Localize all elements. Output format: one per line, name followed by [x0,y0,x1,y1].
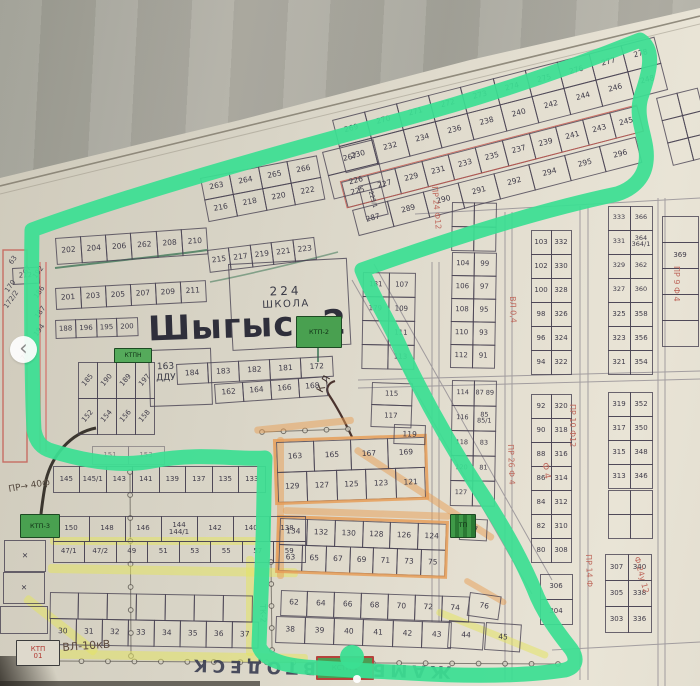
plot-cell: 330 [551,254,572,279]
plot-cell: 182 [238,359,271,382]
plot-cell: 181 [269,357,302,380]
plot-cell: 162 [213,382,243,404]
plot-cell [608,490,631,515]
plot-cell: 71 [372,547,398,575]
plot-cell: 126 [389,521,419,549]
plot-cell: 166 [269,378,299,400]
handwritten-note: Ф 4 [539,462,551,480]
plot-cell: 209 [154,281,181,304]
plot-cell: 47/1 [53,541,86,563]
handwritten-note: ТК-2 [258,604,267,623]
plot-cell: 57 [242,541,275,563]
plot-cell: 303 [605,606,629,633]
plot-cell: 115 [371,381,413,405]
plot-cell: 51 [147,541,180,563]
plot-cell: 96 [531,326,552,351]
plot-cell [473,226,496,251]
plot-map-photo: Шыгыс- 2 224 ШКОЛА 163 ДДУ ЖАМБЫ АВТОДЕС… [0,0,700,686]
plot-cell: 145/1 [79,466,107,493]
plot-cell: 189 [116,362,136,399]
handwritten-note: ПР 14 Ф [584,554,593,587]
plot-cell: 317 [608,416,631,441]
plot-cell: 85 85/1 [473,405,496,431]
plot-cell: 208 [156,229,184,258]
plot-block-col-114: 11487 8911685 85/11188312081127 [450,380,496,506]
plot-cell: 98 [531,302,552,327]
plot-block-col-blank-r [608,490,652,538]
plot-cell: 82 [531,514,552,539]
plot-cell: 110 [450,320,473,344]
kindergarten-number: 163 [156,362,176,373]
plot-block-col-104: 1049910697108951109311291 [450,252,496,368]
plot-cell: 112 [449,343,472,367]
plot-cell: 305 [605,580,629,607]
plot-cell: 42 [392,620,423,648]
plot-cell: 153 [128,446,165,465]
plot-cell: 329 [608,254,631,279]
plot-cell: 130 [334,519,364,547]
plot-cell: 140 [233,516,270,542]
plot-cell: 111 [387,320,414,345]
plot-cell: 324 [551,326,572,351]
plot-cell: 346 [630,464,653,489]
plot-cell: 327 [608,278,631,303]
plot-cell: 124 [417,522,447,550]
plot-cell [608,514,631,539]
plot-cell: 204 [80,234,108,263]
plot-cell: 141 [132,466,160,493]
plot-cell: 203 [79,285,106,308]
plot-cell: 156 [116,398,136,435]
plot-cell: 197 [135,362,155,399]
plot-cell: 62 [280,589,309,616]
plot-cell: 97 [473,275,496,299]
plot-cell: 151 [92,446,129,465]
handwritten-note: ВЛ-10кВ [62,639,111,653]
plot-cell: 356 [630,326,653,351]
plot-cell: 165 [312,439,351,471]
plot-cell: 121 [395,466,427,498]
plot-cell: 158 [135,398,155,435]
plot-cell: 40 [333,618,364,646]
plot-cell: 66 [333,591,362,618]
plot-cell: 172 [300,355,333,378]
substation-box: КТПН [114,348,152,363]
plot-cell: 103 [531,230,552,255]
plot-cell: 364 364/1 [630,230,653,255]
plot-cell: ✕ [3,572,45,604]
plot-cell: 183 [207,360,240,383]
plot-cell: 366 [630,206,653,231]
plot-cell [451,225,474,250]
handwritten-note: ПР 10 Ф12 [568,404,576,447]
plot-cell [361,343,388,368]
plot-cell: 87 89 [473,380,496,406]
plot-cell: 81 [472,455,495,481]
plot-block-garages [451,202,496,251]
plot-cell: 36 [205,620,232,647]
plot-cell: 310 [551,514,572,539]
plot-cell: 352 [630,392,653,417]
plot-cell [630,514,653,539]
plot-cell: 132 [306,518,336,546]
plot-cell: 211 [179,280,206,303]
plot-cell: 333 [608,206,631,231]
plot-cell: 119 [393,424,426,445]
plot-cell: 200 [116,317,138,337]
substation-box: КТП-2 [296,316,342,348]
plot-block-rot-185: 185190189197152154156158 [78,362,154,434]
plot-cell: 314 [551,466,572,491]
plot-cell: 95 [472,298,495,322]
plot-cell: 114 [451,379,474,405]
plot-cell: 179 [362,295,389,320]
plot-cell: 319 [608,392,631,417]
plot-cell: 362 [630,254,653,279]
plot-cell: 108 [450,297,473,321]
plot-cell [630,490,653,515]
plot-cell [193,594,223,622]
plot-cell: 59 [273,541,306,563]
plot-cell: 33 [127,619,154,646]
carousel-prev-button[interactable]: ‹ [10,336,37,363]
plot-cell: 207 [129,282,156,305]
plot-cell: 142 [197,516,234,542]
plot-cell: 348 [630,440,653,465]
plot-cell [471,480,494,506]
plot-cell: 137 [185,466,213,493]
plot-cell [222,595,252,623]
plot-cell: 358 [630,302,653,327]
plot-cell: 44 [447,620,485,650]
plot-block-row-38: 383940414243 [275,616,452,648]
plot-cell: 109 [388,296,415,321]
plot-cell: 188 [54,319,76,339]
plot-block-row-188: 188196195200 [55,317,138,338]
plot-cell: 102 [531,254,552,279]
plot-cell: 196 [75,318,97,338]
plot-cell: 99 [473,252,496,276]
plot-cell: 91 [471,344,494,368]
plot-cell: 144 144/1 [161,516,198,542]
plot-cell: 262 [130,230,158,259]
plot-cell: 326 [551,302,572,327]
plot-cell [78,592,108,620]
plot-cell: 322 [551,350,572,375]
plot-cell: 143 [106,466,134,493]
chevron-left-icon: ‹ [19,338,27,359]
plot-cell: 321 [608,350,631,375]
plot-block-col-333: 333366331364 364/1329362327360 [608,206,652,302]
plot-block-row-150: 150148146144 144/1142140138 [53,516,305,541]
plot-cell: 133 [238,466,266,493]
plot-cell [107,592,137,620]
plot-cell: 35 [179,620,206,647]
plot-block-col-103: 103332102330100328983269632494322 [531,230,571,374]
plot-cell: 127 [449,479,472,505]
plot-cell: 84 [531,490,552,515]
plot-cell: 41 [363,619,394,647]
plot-cell: 336 [628,606,652,633]
plot-cell: 369 [662,242,699,269]
plot-block-orange-163: 163165167169129127125123121 [276,437,426,502]
plot-cell: 45 [484,622,522,652]
plot-cell: 145 [53,466,81,493]
plot-cell: 107 [388,272,415,297]
handwritten-note: ВЛ 0,4 [508,296,517,323]
plot-cell: 350 [630,416,653,441]
kindergarten-text: ДДУ [156,372,176,383]
plot-cell: 307 [605,554,629,581]
plot-cell: 313 [608,464,631,489]
plot-cell: 331 [608,230,631,255]
handwritten-note: ПР 26 Ф 4 [506,444,515,485]
plot-cell: 210 [181,227,209,256]
plot-cell: 106 [451,274,474,298]
plot-cell: 135 [212,466,240,493]
plot-cell: 38 [275,615,306,643]
plot-cell: 49 [116,541,149,563]
plot-cell: 304 [540,599,573,625]
plot-cell: 55 [210,541,243,563]
plot-cell: 128 [362,520,392,548]
plot-cell: 328 [551,278,572,303]
plot-cell: 184 [175,362,208,385]
plot-cell: 113 [387,344,414,369]
plot-cell: 92 [531,394,552,419]
plot-block-col-325: 325358323356321354 [608,302,652,374]
handwritten-note: ПР 9 Ф 4 [672,266,680,302]
plot-cell: 152 [78,398,98,435]
school-text: ШКОЛА [262,298,310,312]
plot-cell: 120 [450,454,473,480]
plot-cell: 195 [95,317,117,337]
plot-cell: 332 [551,230,572,255]
plot-cell: 116 [451,404,474,430]
plot-cell: 181 [362,271,389,296]
plot-cell: 323 [608,326,631,351]
plot-cell [662,216,699,243]
plot-cell: 146 [125,516,162,542]
plot-cell: 360 [630,278,653,303]
plot-cell: 72 [414,594,443,621]
plot-cell: 94 [531,350,552,375]
plot-cell: 164 [241,380,271,402]
plot-cell [473,202,496,227]
plot-cell: 68 [360,592,389,619]
plot-block-col-181: 181107179109111113 [361,272,415,369]
plot-cell: 75 [420,548,446,576]
plot-cell [136,593,166,621]
photo-edge-shadow [0,681,260,686]
plot-cell: 123 [365,467,397,499]
plot-cell [164,594,194,622]
plot-cell: 312 [551,490,572,515]
plot-block-col-115: 115117 [370,382,412,427]
plot-cell: 83 [472,430,495,456]
plot-cell: 205 [104,284,131,307]
plot-cell: 190 [97,362,117,399]
plot-cell: 80 [531,538,552,563]
plot-cell: 163 [275,440,314,472]
plot-block-row-145: 145145/1143141139137135133 [53,466,265,492]
plot-cell: 90 [531,418,552,443]
school-number: 224 [262,283,310,300]
plot-cell: 201 [54,286,81,309]
plot-cell: 138 [269,516,306,542]
plot-cell: 34 [153,619,180,646]
plot-cell [451,201,474,226]
plot-cell: 104 [451,251,474,275]
plot-cell: 70 [387,593,416,620]
plot-cell: 148 [89,516,126,542]
plot-cell: 129 [277,470,309,502]
plot-cell: 125 [336,468,368,500]
plot-cell [662,320,699,347]
plot-cell: 308 [551,538,572,563]
plot-block-col-319: 319352317350315348313346 [608,392,652,488]
plot-cell: 354 [630,350,653,375]
kindergarten-label: 163 ДДУ [156,362,176,384]
school-label: 224 ШКОЛА [262,283,310,312]
plot-cell: 185 [78,362,98,399]
plot-cell [49,591,79,619]
plot-cell: 100 [531,278,552,303]
plot-cell: 76 [467,592,502,620]
plot-cell: 206 [105,232,133,261]
plot-cell: 67 [325,545,351,573]
plot-cell: 325 [608,302,631,327]
plot-cell: 306 [540,574,573,600]
substation-box: ТП [450,514,476,538]
substation-box: КСТП-1 [316,656,374,680]
plot-cell: 37 [231,621,258,648]
substation-box: КТП-3 [20,514,60,538]
plot-cell [0,606,48,634]
plot-cell: 139 [159,466,187,493]
plot-cell: 118 [450,429,473,455]
plot-cell: 315 [608,440,631,465]
plot-block-col-92: 92320903188831686314843128231080308 [531,394,571,562]
plot-cell [361,319,388,344]
plot-cell: 154 [97,398,117,435]
plot-cell: ✕ [4,540,46,572]
plot-cell: 93 [472,321,495,345]
plot-cell: 39 [304,617,335,645]
plot-block-row-153: 151153 [92,446,164,464]
plot-cell: 127 [306,469,338,501]
substation-box: КТП 01 [16,640,60,666]
plot-block-row-47: 47/147/2495153555759 [53,541,305,562]
plot-cell: 74 [441,595,470,622]
plot-cell: 64 [306,590,335,617]
plot-cell: 73 [396,548,422,576]
plot-cell: 69 [349,546,375,574]
plot-cell: 47/2 [84,541,117,563]
plot-block-col-306: 306304 [540,574,572,624]
plot-cell: 167 [349,438,388,470]
plot-cell: 53 [179,541,212,563]
plot-cell: 202 [54,236,82,265]
